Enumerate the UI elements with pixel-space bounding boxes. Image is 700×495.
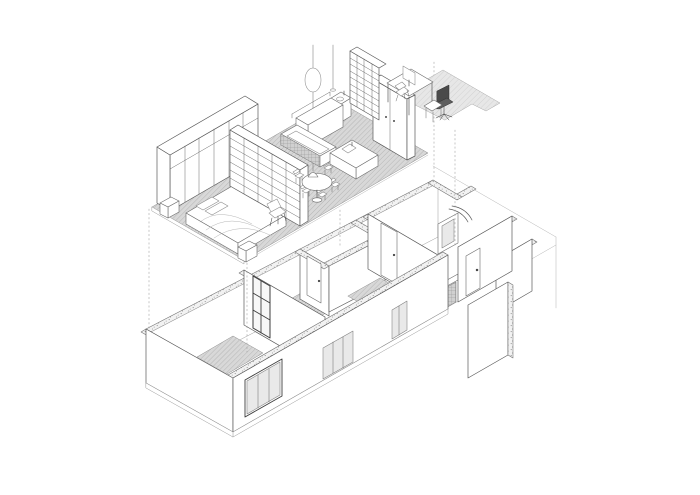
fragment-1-door bbox=[466, 248, 480, 296]
drawing-canvas bbox=[0, 0, 700, 495]
corridor-door bbox=[381, 223, 397, 284]
table-base bbox=[312, 198, 322, 202]
corridor-door-handle bbox=[393, 254, 395, 256]
fragment-1-door-handle bbox=[476, 269, 478, 271]
drawing-root bbox=[141, 45, 556, 437]
basin bbox=[337, 97, 344, 101]
wall-fragments bbox=[458, 216, 537, 378]
oval-mirror bbox=[305, 68, 321, 92]
back-room-door-handle bbox=[318, 280, 320, 282]
fragment-3-face bbox=[468, 282, 508, 378]
closet-side bbox=[407, 95, 415, 160]
glazed-door bbox=[253, 276, 270, 338]
axonometric-apartment-drawing bbox=[0, 0, 700, 495]
back-room-door bbox=[307, 256, 321, 303]
